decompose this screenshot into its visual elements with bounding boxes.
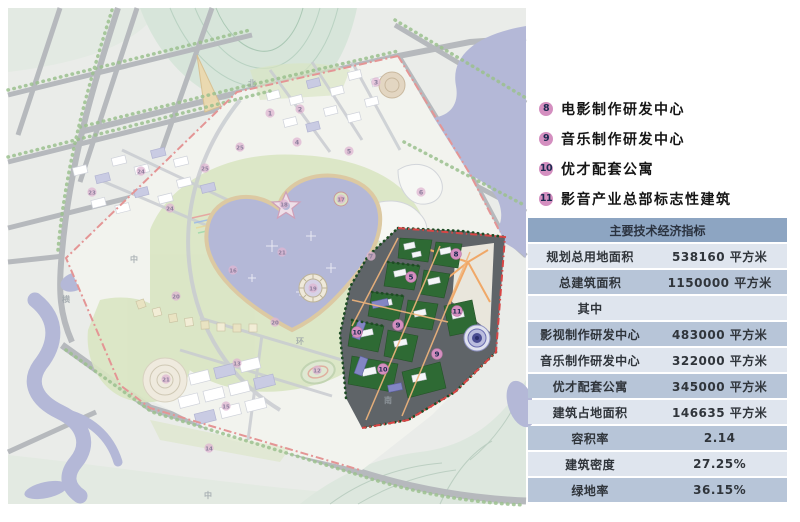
map-marker-12: 12 [312, 365, 321, 374]
row-value: 322000 平方米 [652, 352, 787, 369]
table-row: 优才配套公寓 345000 平方米 [528, 374, 787, 398]
row-value: 36.15% [652, 483, 787, 497]
svg-text:5: 5 [408, 273, 413, 282]
map-marker-24: 24 [165, 203, 174, 212]
road-label: 中 [130, 254, 138, 264]
landmark-circle [464, 325, 490, 351]
row-label: 优才配套公寓 [528, 378, 652, 395]
map-marker-9: 9 [393, 320, 404, 331]
svg-text:9: 9 [395, 321, 400, 330]
legend-item-10: 10 优才配套公寓 [539, 160, 794, 178]
legend-badge-11: 11 [539, 192, 553, 206]
svg-text:7: 7 [369, 253, 373, 260]
road-label: 北 [248, 78, 256, 88]
road-label: 南 [384, 395, 392, 405]
map-marker-1: 1 [265, 108, 274, 117]
svg-text:14: 14 [205, 446, 213, 452]
map-marker-9: 9 [432, 349, 443, 360]
svg-text:24: 24 [166, 206, 174, 212]
row-label: 影视制作研发中心 [528, 326, 652, 343]
legend-label-11: 影音产业总部标志性建筑 [561, 189, 732, 209]
svg-text:10: 10 [379, 366, 388, 374]
legend-label-8: 电影制作研发中心 [561, 99, 685, 119]
map-marker-8: 8 [451, 249, 462, 260]
svg-text:21: 21 [162, 377, 170, 383]
legend-item-9: 9 音乐制作研发中心 [539, 130, 794, 148]
map-marker-3: 3 [371, 77, 380, 86]
map-marker-23: 23 [87, 187, 96, 196]
legend-label-10: 优才配套公寓 [561, 159, 654, 179]
svg-text:4: 4 [295, 139, 300, 146]
map-marker-6: 6 [416, 187, 425, 196]
svg-text:15: 15 [222, 404, 230, 410]
row-label: 绿地率 [528, 482, 652, 499]
map-marker-10: 10 [378, 364, 389, 375]
row-label: 总建筑面积 [528, 274, 652, 291]
svg-text:12: 12 [313, 368, 321, 374]
map-marker-15: 15 [221, 401, 230, 410]
row-value: 2.14 [652, 431, 787, 445]
svg-text:3: 3 [374, 79, 378, 86]
svg-text:10: 10 [353, 329, 362, 337]
map-marker-7: 7 [366, 251, 375, 260]
row-label: 建筑占地面积 [528, 404, 652, 421]
legend-badge-9: 9 [539, 132, 553, 146]
svg-text:25: 25 [201, 166, 209, 172]
svg-text:13: 13 [233, 361, 241, 367]
legend-label-9: 音乐制作研发中心 [561, 129, 685, 149]
map-marker-5: 5 [344, 146, 353, 155]
svg-text:11: 11 [453, 308, 462, 316]
map-marker-19: 19 [308, 283, 317, 292]
table-title: 主要技术经济指标 [528, 218, 787, 242]
master-plan-svg: 北中横环南中 123456725252324241817211916202021… [0, 0, 532, 518]
row-label: 规划总用地面积 [528, 248, 652, 265]
table-row: 容积率 2.14 [528, 426, 787, 450]
master-plan-map: 北中横环南中 123456725252324241817211916202021… [0, 0, 532, 518]
row-label: 其中 [528, 300, 652, 317]
road-label: 中 [204, 490, 212, 500]
map-marker-11: 11 [452, 306, 463, 317]
row-label: 容积率 [528, 430, 652, 447]
map-marker-25: 25 [200, 163, 209, 172]
legend-badge-8: 8 [539, 102, 553, 116]
legend: 8 电影制作研发中心 9 音乐制作研发中心 10 优才配套公寓 11 影音产业总… [539, 100, 794, 220]
map-marker-2: 2 [295, 104, 304, 113]
row-label: 音乐制作研发中心 [528, 352, 652, 369]
table-row: 音乐制作研发中心 322000 平方米 [528, 348, 787, 372]
legend-badge-10: 10 [539, 162, 553, 176]
svg-text:25: 25 [236, 145, 244, 151]
map-marker-17: 17 [336, 194, 345, 203]
row-value: 345000 平方米 [652, 378, 787, 395]
legend-item-8: 8 电影制作研发中心 [539, 100, 794, 118]
table-row: 建筑占地面积 146635 平方米 [528, 400, 787, 424]
svg-text:20: 20 [172, 294, 180, 300]
table-row: 影视制作研发中心 483000 平方米 [528, 322, 787, 346]
map-marker-13: 13 [232, 358, 241, 367]
svg-text:2: 2 [298, 106, 302, 113]
table-row: 总建筑面积 1150000 平方米 [528, 270, 787, 294]
map-marker-18: 18 [279, 199, 288, 208]
map-marker-21: 21 [277, 247, 286, 256]
indicator-table: 主要技术经济指标 规划总用地面积 538160 平方米 总建筑面积 115000… [528, 218, 787, 504]
svg-text:23: 23 [88, 190, 96, 196]
table-row: 其中 [528, 296, 787, 320]
map-marker-20: 20 [171, 291, 180, 300]
svg-text:8: 8 [453, 250, 458, 259]
row-value: 538160 平方米 [652, 248, 787, 265]
svg-text:9: 9 [434, 350, 439, 359]
legend-item-11: 11 影音产业总部标志性建筑 [539, 190, 794, 208]
map-marker-14: 14 [204, 443, 213, 452]
svg-text:16: 16 [229, 268, 237, 274]
svg-text:21: 21 [278, 250, 286, 256]
svg-text:6: 6 [419, 189, 423, 196]
svg-text:17: 17 [337, 197, 345, 203]
map-marker-21: 21 [161, 374, 170, 383]
map-marker-24: 24 [136, 166, 145, 175]
map-marker-4: 4 [292, 137, 301, 146]
road-label: 环 [296, 337, 304, 346]
svg-text:20: 20 [271, 320, 279, 326]
row-value: 1150000 平方米 [652, 274, 787, 291]
map-marker-10: 10 [352, 327, 363, 338]
row-value: 27.25% [652, 457, 787, 471]
map-marker-25: 25 [235, 142, 244, 151]
svg-text:24: 24 [137, 169, 145, 175]
map-marker-5: 5 [406, 272, 417, 283]
row-label: 建筑密度 [528, 456, 652, 473]
table-row: 规划总用地面积 538160 平方米 [528, 244, 787, 268]
svg-text:18: 18 [280, 202, 288, 208]
row-value: 146635 平方米 [652, 404, 787, 421]
dome-building [379, 72, 405, 98]
table-row: 绿地率 36.15% [528, 478, 787, 502]
table-row: 建筑密度 27.25% [528, 452, 787, 476]
map-marker-20: 20 [270, 317, 279, 326]
svg-text:5: 5 [347, 148, 351, 155]
svg-text:1: 1 [268, 110, 272, 117]
svg-text:19: 19 [309, 286, 317, 292]
row-value: 483000 平方米 [652, 326, 787, 343]
road-label: 横 [62, 294, 71, 304]
map-marker-16: 16 [228, 265, 237, 274]
